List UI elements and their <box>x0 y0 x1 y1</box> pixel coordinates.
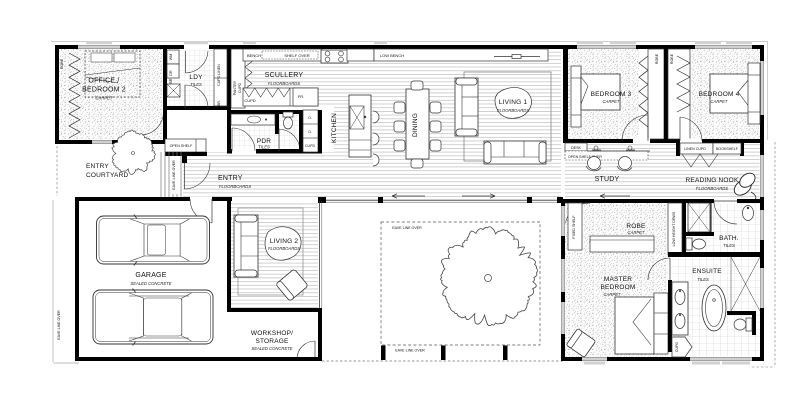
svg-text:OPEN SHELF: OPEN SHELF <box>170 144 194 148</box>
svg-text:LOW BENCH: LOW BENCH <box>380 53 404 58</box>
svg-text:CARPET: CARPET <box>711 99 728 104</box>
svg-text:EAVE LINE OVER: EAVE LINE OVER <box>392 226 422 230</box>
svg-text:FIXED SHELF: FIXED SHELF <box>572 215 576 239</box>
svg-text:SHELF OVER: SHELF OVER <box>284 53 309 58</box>
svg-text:ROBE: ROBE <box>626 223 646 230</box>
svg-text:ROBE: ROBE <box>670 53 674 64</box>
svg-text:LDY: LDY <box>189 74 203 81</box>
svg-text:ENSUITE: ENSUITE <box>692 268 722 275</box>
svg-text:ENTRY: ENTRY <box>86 163 109 170</box>
svg-text:O.: O. <box>308 116 312 120</box>
svg-text:TILES: TILES <box>697 277 709 282</box>
svg-text:CARPET: CARPET <box>96 96 113 101</box>
svg-text:LOW HEIGHT DRWS: LOW HEIGHT DRWS <box>672 211 676 246</box>
svg-text:CARPET: CARPET <box>603 99 620 104</box>
svg-text:WM: WM <box>169 54 173 60</box>
svg-text:COURTYARD: COURTYARD <box>86 172 128 179</box>
svg-text:SEALED CONCRETE: SEALED CONCRETE <box>251 346 292 351</box>
svg-text:EAVE LINE OVER: EAVE LINE OVER <box>395 349 425 353</box>
svg-text:BEDROOM: BEDROOM <box>601 284 636 291</box>
svg-text:CUPD LINEN: CUPD LINEN <box>217 64 221 86</box>
svg-text:STUDY: STUDY <box>595 176 620 183</box>
svg-text:FLOORBOARDS: FLOORBOARDS <box>219 184 251 189</box>
svg-text:BEDROOM 3: BEDROOM 3 <box>591 91 632 98</box>
svg-text:DINING: DINING <box>412 113 419 137</box>
svg-text:BR.: BR. <box>217 100 221 106</box>
svg-text:ENTRY: ENTRY <box>218 175 243 182</box>
svg-text:EAVE LINE OVER: EAVE LINE OVER <box>172 160 176 190</box>
svg-text:FLOORBOARDS: FLOORBOARDS <box>696 186 728 191</box>
svg-text:GARAGE: GARAGE <box>135 272 166 279</box>
svg-text:TILES: TILES <box>258 145 270 150</box>
svg-text:STORAGE: STORAGE <box>255 338 289 345</box>
svg-text:DR: DR <box>169 70 173 76</box>
svg-text:OFFICE /: OFFICE / <box>88 78 119 85</box>
svg-text:LIVING 1: LIVING 1 <box>499 99 528 106</box>
svg-text:FLOORBOARDS: FLOORBOARDS <box>268 246 300 251</box>
svg-text:MASTER: MASTER <box>604 276 632 283</box>
svg-text:WORKSHOP/: WORKSHOP/ <box>251 330 293 337</box>
svg-text:CARPET: CARPET <box>604 292 621 297</box>
svg-text:BEDROOM 4: BEDROOM 4 <box>699 91 740 98</box>
svg-text:FLOORBOARDS: FLOORBOARDS <box>497 108 529 113</box>
svg-text:BATH.: BATH. <box>719 235 739 242</box>
svg-text:BEDROOM 2: BEDROOM 2 <box>82 87 126 94</box>
svg-text:LINEN CUPD: LINEN CUPD <box>684 147 706 151</box>
svg-text:FR.: FR. <box>298 94 304 99</box>
svg-text:CUPD: CUPD <box>675 342 679 353</box>
svg-text:O.: O. <box>308 130 312 134</box>
svg-text:SEALED CONCRETE: SEALED CONCRETE <box>130 281 171 286</box>
svg-text:READING NOOK: READING NOOK <box>686 177 739 184</box>
svg-text:BOOKSHELF: BOOKSHELF <box>716 147 739 151</box>
svg-text:PANTRY: PANTRY <box>233 80 237 95</box>
svg-text:CUPD: CUPD <box>244 98 255 103</box>
svg-text:FLOORBOARDS: FLOORBOARDS <box>268 81 300 86</box>
svg-text:CARPET: CARPET <box>628 230 645 235</box>
svg-text:BENCH: BENCH <box>247 53 261 58</box>
svg-text:ROBE: ROBE <box>655 53 659 64</box>
svg-text:CUPD: CUPD <box>238 83 242 94</box>
svg-text:SCULLERY: SCULLERY <box>265 72 304 79</box>
svg-text:CUPD: CUPD <box>305 144 316 148</box>
svg-text:DESK: DESK <box>571 146 581 150</box>
svg-text:LIVING 2: LIVING 2 <box>270 238 299 245</box>
svg-text:BR: BR <box>169 78 173 83</box>
svg-text:KITCHEN: KITCHEN <box>331 113 338 143</box>
svg-text:TILES: TILES <box>723 243 735 248</box>
svg-text:EAVE LINE OVER: EAVE LINE OVER <box>57 310 61 340</box>
svg-text:ROBE: ROBE <box>60 58 64 69</box>
